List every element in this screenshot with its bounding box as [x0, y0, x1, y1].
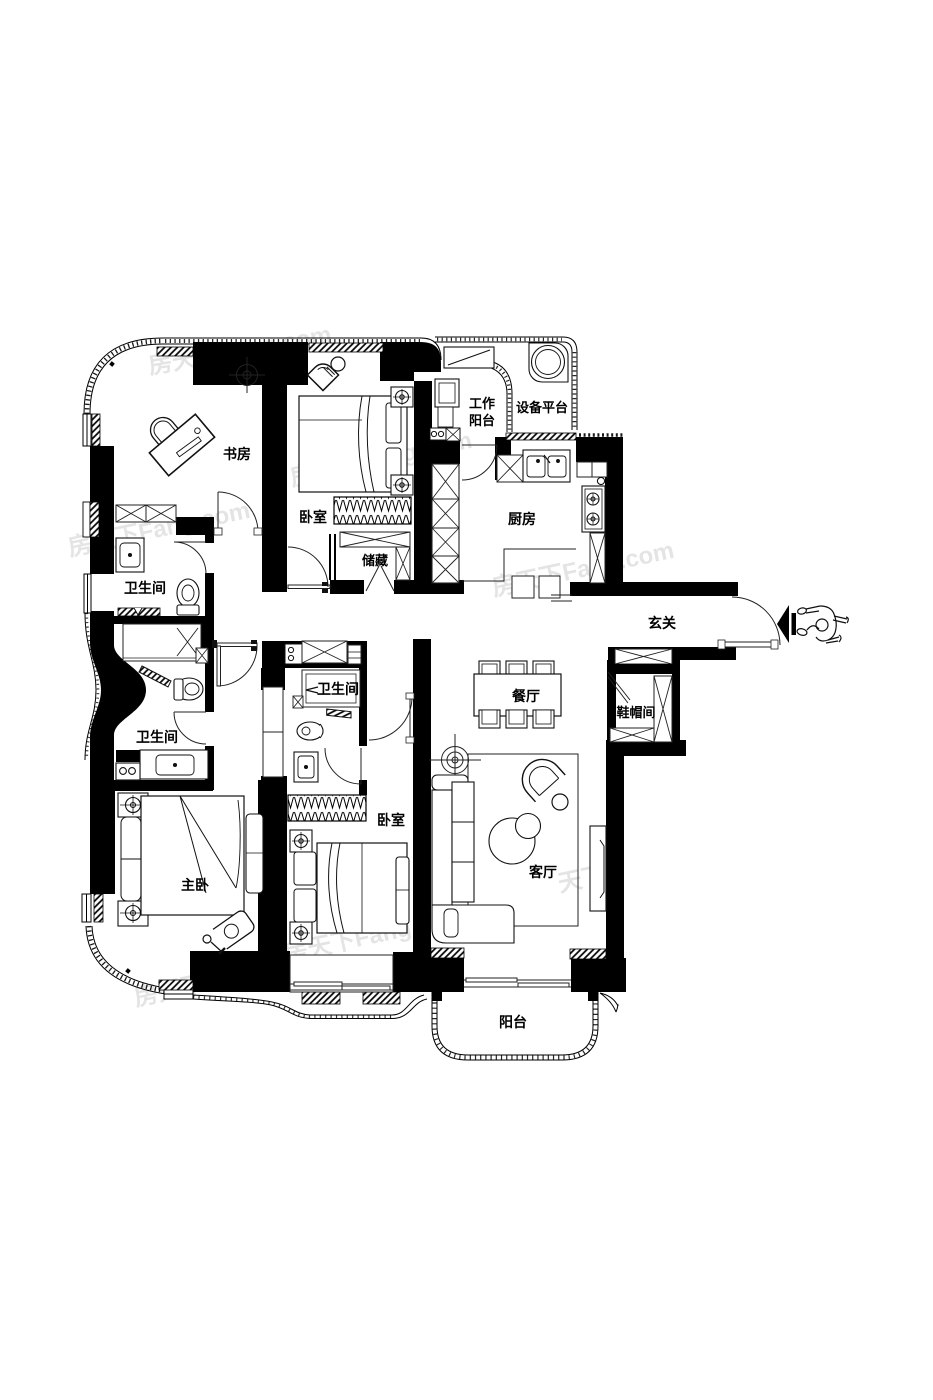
svg-text:卧室: 卧室 [377, 812, 405, 828]
svg-text:卫生间: 卫生间 [136, 729, 178, 745]
svg-text:厨房: 厨房 [508, 511, 536, 527]
svg-text:卫生间: 卫生间 [124, 580, 166, 596]
svg-text:主卧: 主卧 [181, 877, 209, 893]
svg-text:客厅: 客厅 [528, 864, 557, 880]
svg-text:书房: 书房 [223, 446, 251, 462]
svg-text:阳台: 阳台 [499, 1014, 527, 1030]
svg-text:鞋帽间: 鞋帽间 [616, 705, 655, 720]
svg-text:玄关: 玄关 [648, 615, 676, 631]
svg-text:工作: 工作 [469, 396, 495, 411]
svg-text:阳台: 阳台 [469, 413, 495, 428]
svg-text:储藏: 储藏 [361, 553, 388, 568]
svg-text:餐厅: 餐厅 [511, 688, 540, 704]
svg-text:卫生间: 卫生间 [317, 681, 359, 697]
svg-text:设备平台: 设备平台 [516, 400, 568, 415]
svg-text:卧室: 卧室 [299, 509, 327, 525]
